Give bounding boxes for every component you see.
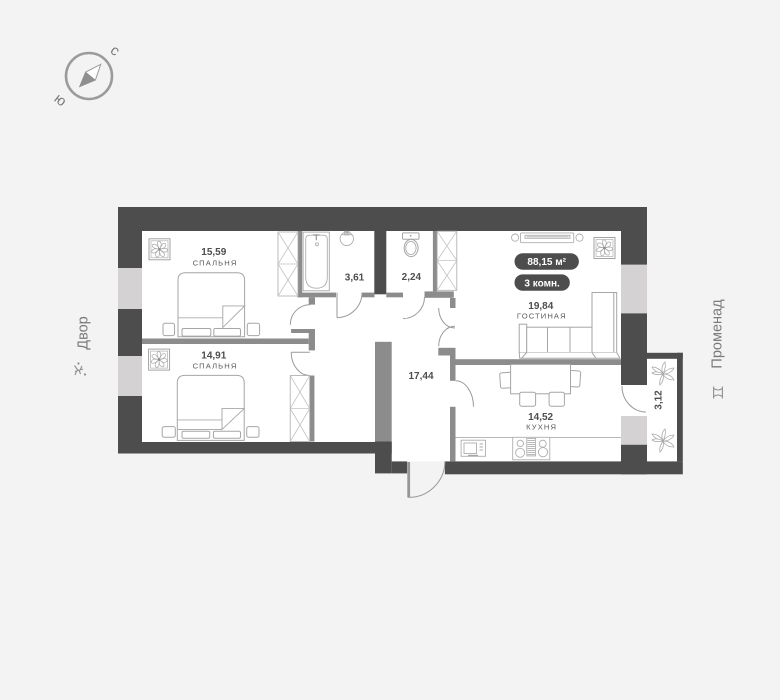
svg-text:Променад: Променад <box>710 299 726 369</box>
svg-text:3,61: 3,61 <box>345 272 365 283</box>
svg-text:19,84: 19,84 <box>528 301 553 312</box>
svg-text:КУХНЯ: КУХНЯ <box>526 423 557 432</box>
svg-text:ГОСТИНАЯ: ГОСТИНАЯ <box>517 312 567 321</box>
svg-text:СПАЛЬНЯ: СПАЛЬНЯ <box>193 258 238 267</box>
svg-text:2,24: 2,24 <box>402 272 422 283</box>
svg-text:17,44: 17,44 <box>408 371 433 382</box>
svg-text:3,12: 3,12 <box>654 390 665 410</box>
svg-text:СПАЛЬНЯ: СПАЛЬНЯ <box>193 362 238 371</box>
svg-text:3 комн.: 3 комн. <box>524 278 560 289</box>
svg-text:Двор: Двор <box>76 316 92 350</box>
svg-text:14,91: 14,91 <box>201 350 226 361</box>
svg-text:88,15 м²: 88,15 м² <box>527 257 566 268</box>
svg-text:14,52: 14,52 <box>528 412 553 423</box>
svg-text:15,59: 15,59 <box>201 247 226 258</box>
